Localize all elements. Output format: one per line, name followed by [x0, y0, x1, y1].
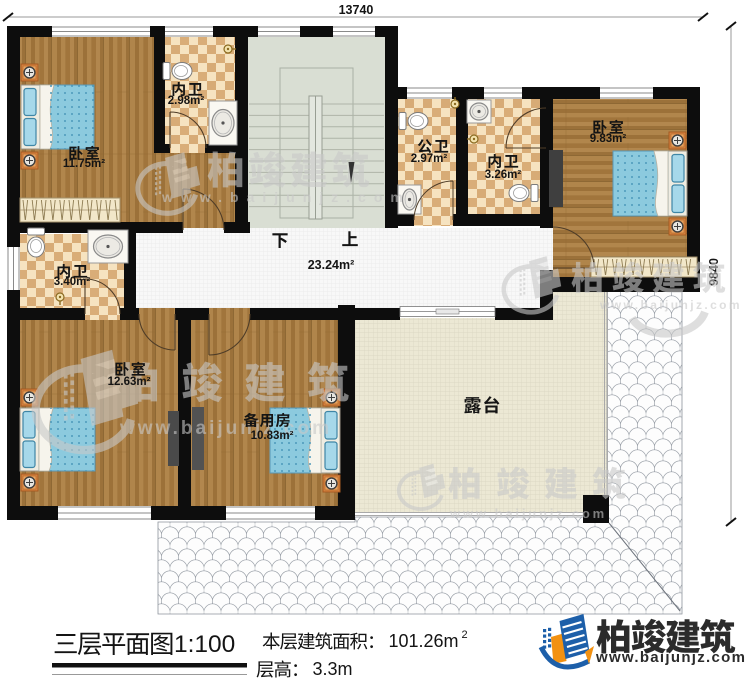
svg-text:www.baijunjz.com: www.baijunjz.com [599, 298, 742, 312]
svg-text:www.baijunjz.com: www.baijunjz.com [449, 506, 607, 521]
svg-text:1:100: 1:100 [174, 631, 235, 658]
svg-text:23.24m²: 23.24m² [308, 258, 355, 272]
svg-text:13740: 13740 [339, 3, 374, 17]
svg-text:11.75m²: 11.75m² [63, 158, 105, 170]
svg-text:9.83m²: 9.83m² [590, 133, 627, 145]
svg-text:3.40m²: 3.40m² [54, 276, 91, 288]
svg-text:www.baijunjz.com: www.baijunjz.com [161, 189, 411, 205]
svg-text:12.63m²: 12.63m² [108, 376, 151, 388]
svg-text:www.baijunjz.com: www.baijunjz.com [119, 418, 332, 439]
svg-text:2.97m²: 2.97m² [411, 153, 448, 165]
svg-text:www.baijunjz.com: www.baijunjz.com [595, 649, 746, 666]
svg-text:2: 2 [462, 629, 468, 641]
svg-text:3.26m²: 3.26m² [485, 169, 522, 181]
svg-text:101.26m: 101.26m [389, 631, 459, 651]
svg-text:3.3m: 3.3m [313, 659, 353, 679]
svg-text:2.98m²: 2.98m² [168, 95, 205, 107]
svg-text:10.83m²: 10.83m² [251, 430, 294, 442]
